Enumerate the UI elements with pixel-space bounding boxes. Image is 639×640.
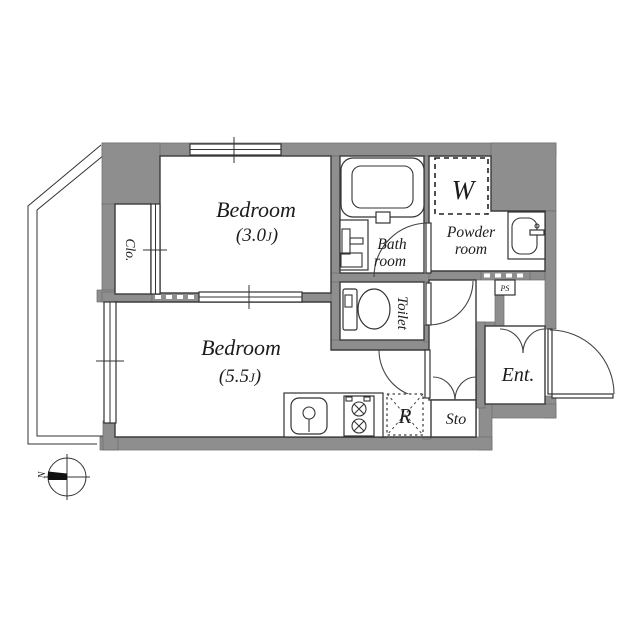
pipe-space-label: PS (500, 284, 510, 293)
size-close: ) (254, 366, 261, 387)
entrance-door-open-leaf (552, 394, 613, 398)
bedroom-upper-label: Bedroom (216, 197, 296, 222)
balcony-outer-line (28, 145, 101, 444)
wall-segment (530, 271, 545, 280)
wall-segment (331, 156, 340, 350)
wall-segment (331, 273, 431, 282)
bath-door-leaf (426, 223, 431, 273)
compass-north-pointer (48, 472, 67, 481)
bathtub-step (376, 212, 390, 223)
wall-segment (476, 322, 485, 408)
wall-segment (545, 211, 556, 329)
bath-washstand-icon (340, 220, 368, 270)
toilet-door-leaf (426, 283, 431, 325)
balcony-outline (28, 145, 104, 444)
bedroom-lower-size: (5.5J) (219, 366, 261, 387)
bedroom-upper-size: (3.0J) (236, 225, 278, 246)
washer-space-label: W (452, 175, 477, 205)
powder-sink-faucet (530, 230, 544, 235)
entrance-door-leaf (548, 329, 552, 394)
wall-segment (495, 293, 504, 327)
closet-label: Clo. (123, 239, 138, 262)
compass-north-label: N (37, 470, 48, 479)
toilet-icon (343, 289, 390, 330)
floor-plan-page: N Bedroom (3.0J) Bedroom (5.5J) Clo. Bat… (0, 0, 639, 640)
stove-icon (344, 396, 374, 436)
room-corridor (429, 280, 476, 400)
entrance-door-swing-arc (550, 330, 614, 394)
north-compass: N (37, 454, 90, 500)
bath-label-line1: Bath (377, 236, 407, 253)
kitchen-counter (284, 393, 383, 437)
hall-door-leaf (425, 350, 430, 398)
wall-segment (491, 143, 556, 211)
size-open: (5.5 (219, 366, 249, 387)
entrance-label: Ent. (501, 364, 535, 386)
toilet-bowl (358, 289, 390, 329)
powder-label-line1: Powder (446, 224, 496, 241)
size-open: (3.0 (236, 225, 267, 246)
balcony-inner-line (37, 155, 104, 436)
size-close: ) (271, 225, 278, 246)
wall-segment (102, 143, 556, 156)
floor-plan-canvas: N Bedroom (3.0J) Bedroom (5.5J) Clo. Bat… (0, 0, 639, 640)
powder-label-line2: room (455, 241, 487, 258)
storage-label: Sto (446, 411, 466, 428)
wall-segment (102, 204, 115, 294)
bath-label-line2: room (374, 253, 406, 270)
bedroom-lower-label: Bedroom (201, 335, 281, 360)
wall-segment (331, 340, 431, 350)
toilet-label: Toilet (394, 296, 410, 330)
powder-sink-icon (508, 212, 545, 259)
wall-segment (429, 271, 481, 280)
refrigerator-space-label: R (398, 404, 412, 428)
washstand-counter (340, 220, 368, 270)
wall-segment (102, 143, 160, 205)
bathtub-icon (341, 158, 424, 223)
wall-segment (100, 437, 492, 450)
